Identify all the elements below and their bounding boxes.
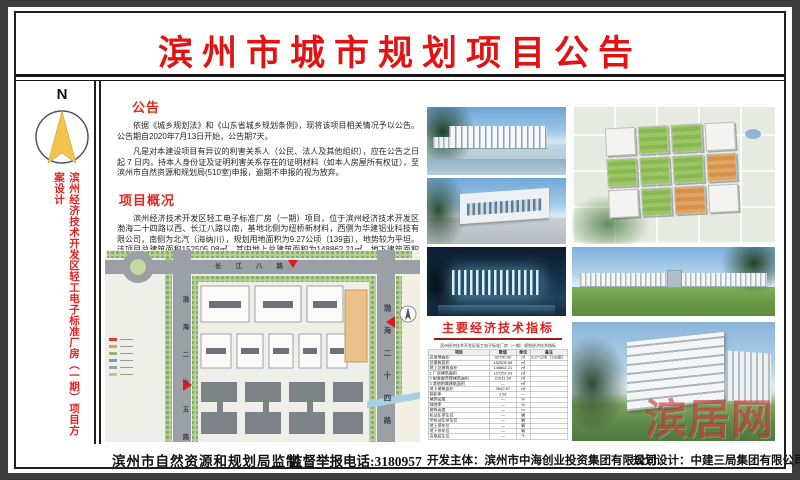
- aerial-building-block: [705, 153, 737, 183]
- footer-producer: 滨州市自然资源和规划局监制: [112, 450, 301, 470]
- poster-title: 滨州市城市规划项目公告: [20, 25, 780, 76]
- indicators-table-wrap: 滨州经济技术开发区轻工电子标准厂房（一期）规划经济技术指标 项目数值单位备注 总…: [428, 343, 568, 439]
- notice-text-column: 公告 依据《城乡规划法》和《山东省城乡规划条例》，现将该项目相关情况予以公告。公…: [117, 97, 419, 271]
- aerial-building-block: [604, 127, 636, 157]
- indicators-table-body: 总用地面积92700.00㎡9.27公顷（139亩）总建筑面积152505.08…: [428, 355, 568, 439]
- road-label-bohai-25: 渤海二十五路: [179, 296, 189, 442]
- building-shape: [460, 188, 549, 225]
- aerial-building-block: [674, 185, 706, 215]
- footer-developer: 开发主体：滨州市中海创业投资集团有限公司: [427, 452, 657, 468]
- indicators-table-title: 滨州经济技术开发区轻工电子标准厂房（一期）规划经济技术指标: [428, 343, 568, 349]
- footer-hotline: 监督举报电话:3180957: [289, 450, 422, 470]
- site-plan: 长江八路 渤海二十五路 渤海二十四路: [105, 250, 420, 442]
- building-wing-shape: [433, 137, 452, 149]
- water-reflection: [427, 159, 566, 175]
- site-plan-compass-icon: [400, 306, 416, 322]
- lit-building-shape: [452, 270, 541, 295]
- aerial-building-block: [671, 123, 703, 153]
- site-watermark: 滨居网: [645, 399, 774, 441]
- rendering-riverside-view: [427, 107, 566, 175]
- rendering-lawn-view: [572, 247, 775, 316]
- gate-shape: [667, 270, 681, 289]
- indicators-table: 项目数值单位备注 总用地面积92700.00㎡9.27公顷（139亩）总建筑面积…: [428, 350, 568, 440]
- aerial-building-block: [607, 189, 639, 219]
- aerial-building-block: [672, 154, 704, 184]
- service-building: [345, 290, 367, 362]
- sidebar-divider: [94, 81, 101, 444]
- planning-announcement-poster: 滨州市城市规划项目公告 N 滨州经济技术开发区轻工电子标准厂房（一期）项目方案设…: [0, 0, 800, 480]
- rendering-street-view: [427, 178, 566, 244]
- aerial-building-grid: [604, 121, 738, 218]
- building-shape: [449, 126, 546, 148]
- announcement-paragraph-2: 凡是对本建设项目有异议的利害关系人（公民、法人及其他组织），应在公告之日起 7 …: [117, 147, 419, 179]
- road-label-bohai-24: 渤海二十四路: [382, 304, 393, 439]
- rendering-aerial-view: [572, 107, 775, 244]
- site-plan-drawing: [105, 250, 420, 442]
- aerial-building-block: [639, 156, 671, 186]
- announcement-heading: 公告: [132, 97, 419, 116]
- aerial-building-block: [606, 158, 638, 188]
- glass-facade: [467, 198, 542, 216]
- road-label-changjiang-8: 长江八路: [215, 260, 297, 270]
- overview-heading: 项目概况: [119, 190, 419, 209]
- announcement-paragraph-1: 依据《城乡规划法》和《山东省城乡规划条例》，现将该项目相关情况予以公告。公告期自…: [117, 121, 419, 142]
- footer-designer: 规划设计：中建三局集团有限公司: [633, 452, 800, 468]
- indicators-heading: 主要经济技术指标: [434, 319, 562, 340]
- aerial-building-block: [637, 125, 669, 155]
- aerial-building-block: [641, 187, 673, 217]
- compass-icon: [34, 105, 90, 169]
- compass-north-label: N: [47, 86, 77, 103]
- aerial-building-block: [704, 121, 736, 151]
- rendering-night-view: [427, 247, 566, 316]
- indicator-row: 充电桩车位—个: [428, 434, 568, 439]
- rendering-entrance-perspective: 滨居网: [572, 322, 775, 441]
- aerial-building-block: [707, 184, 739, 214]
- sidebar-project-title: 滨州经济技术开发区轻工电子标准厂房（一期）项目方案设计: [52, 172, 82, 446]
- indicator-row: 总用地面积92700.00㎡9.27公顷（139亩）: [428, 355, 568, 360]
- title-divider: [16, 74, 784, 81]
